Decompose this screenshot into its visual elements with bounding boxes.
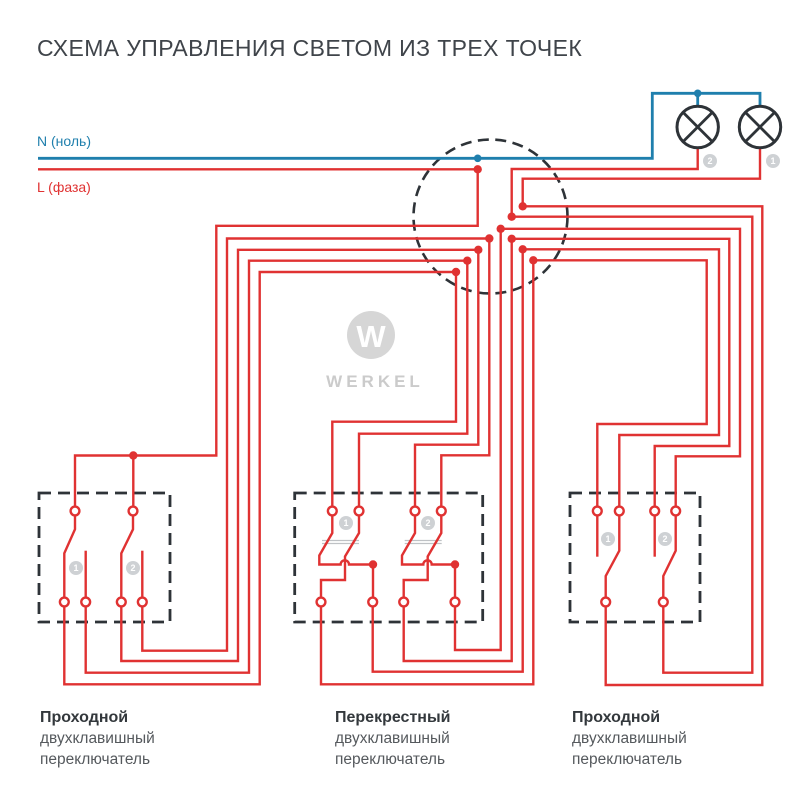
junction-dot bbox=[497, 225, 505, 233]
logo-monogram: W bbox=[356, 319, 386, 354]
middle-switch-gang1-badge: 1 bbox=[339, 516, 353, 530]
terminal bbox=[593, 507, 602, 516]
neutral-label: N (ноль) bbox=[37, 133, 91, 149]
middle-switch-gang2-badge: 2 bbox=[421, 516, 435, 530]
terminal bbox=[650, 507, 659, 516]
right-switch-gang2-badge: 2 bbox=[658, 532, 672, 546]
terminal bbox=[60, 598, 69, 607]
terminal bbox=[355, 507, 364, 516]
lamp-2-badge: 2 bbox=[703, 154, 717, 168]
logo-wordmark: WERKEL bbox=[326, 372, 424, 391]
junction-dot bbox=[529, 256, 537, 264]
junction-dot-phase bbox=[474, 165, 482, 173]
wire-phase-feed bbox=[38, 169, 478, 506]
terminal bbox=[659, 598, 668, 607]
switch-caption-line3: переключатель bbox=[335, 749, 450, 770]
lamp-2 bbox=[677, 106, 718, 147]
werkel-logo: W WERKEL bbox=[326, 311, 424, 391]
terminal bbox=[368, 598, 377, 607]
wire-sw2-out2-to-sw3 bbox=[373, 249, 719, 671]
switch-caption-name: Проходной bbox=[572, 707, 687, 728]
switch-lever bbox=[121, 515, 133, 597]
left-switch-internals bbox=[60, 507, 147, 607]
terminal bbox=[601, 598, 610, 607]
lamp-1-badge: 1 bbox=[766, 154, 780, 168]
junction-dot bbox=[474, 246, 482, 254]
terminal bbox=[129, 507, 138, 516]
left-switch-box bbox=[39, 493, 170, 622]
branch-dot-left-switch bbox=[129, 451, 137, 459]
neutral-branch-dot bbox=[694, 90, 702, 98]
junction-dot bbox=[508, 235, 516, 243]
page-title: СХЕМА УПРАВЛЕНИЯ СВЕТОМ ИЗ ТРЕХ ТОЧЕК bbox=[37, 35, 582, 62]
terminal bbox=[328, 507, 337, 516]
crossover-dot bbox=[451, 560, 459, 568]
switch-caption-line2: двухклавишный bbox=[572, 728, 687, 749]
switch-caption-name: Проходной bbox=[40, 707, 155, 728]
switch-lever bbox=[606, 515, 620, 597]
right-switch-gang1-badge: 1 bbox=[601, 532, 615, 546]
junction-dot bbox=[463, 257, 471, 265]
lamp-1 bbox=[739, 106, 780, 147]
terminal bbox=[71, 507, 80, 516]
diagram-canvas: W WERKEL bbox=[0, 0, 800, 800]
switch-lever bbox=[64, 515, 75, 597]
switch-caption-name: Перекрестный bbox=[335, 707, 450, 728]
terminal bbox=[437, 507, 446, 516]
terminal bbox=[615, 507, 624, 516]
crossover-dot bbox=[369, 560, 377, 568]
left-switch-caption: Проходной двухклавишный переключатель bbox=[40, 707, 155, 770]
right-switch-internals bbox=[593, 507, 680, 607]
terminal bbox=[138, 598, 147, 607]
switch-lever bbox=[663, 515, 675, 597]
phase-label: L (фаза) bbox=[37, 179, 91, 195]
neutral-wire-main bbox=[38, 93, 760, 158]
junction-dots bbox=[129, 165, 537, 460]
wire-junction-to-lamp1 bbox=[523, 148, 760, 207]
switch-caption-line3: переключатель bbox=[40, 749, 155, 770]
switch-caption-line2: двухклавишный bbox=[335, 728, 450, 749]
left-switch-gang1-badge: 1 bbox=[69, 561, 83, 575]
right-switch-caption: Проходной двухклавишный переключатель bbox=[572, 707, 687, 770]
terminal bbox=[411, 507, 420, 516]
terminal bbox=[117, 598, 126, 607]
wiring-diagram: W WERKEL bbox=[0, 0, 800, 800]
wire-sw3-common2-to-junction bbox=[512, 217, 753, 673]
neutral-junction-dot bbox=[474, 155, 482, 163]
terminal bbox=[671, 507, 680, 516]
switch-caption-line3: переключатель bbox=[572, 749, 687, 770]
neutral-wire bbox=[38, 90, 760, 163]
switch-caption-line2: двухклавишный bbox=[40, 728, 155, 749]
junction-dot bbox=[485, 234, 493, 242]
junction-dot-lamp2 bbox=[508, 213, 516, 221]
terminal bbox=[81, 598, 90, 607]
junction-dot bbox=[452, 268, 460, 276]
terminal bbox=[317, 598, 326, 607]
terminal bbox=[451, 598, 460, 607]
left-switch-gang2-badge: 2 bbox=[126, 561, 140, 575]
middle-switch-caption: Перекрестный двухклавишный переключатель bbox=[335, 707, 450, 770]
junction-dot bbox=[519, 245, 527, 253]
terminal bbox=[399, 598, 408, 607]
junction-dot-lamp1 bbox=[519, 202, 527, 210]
